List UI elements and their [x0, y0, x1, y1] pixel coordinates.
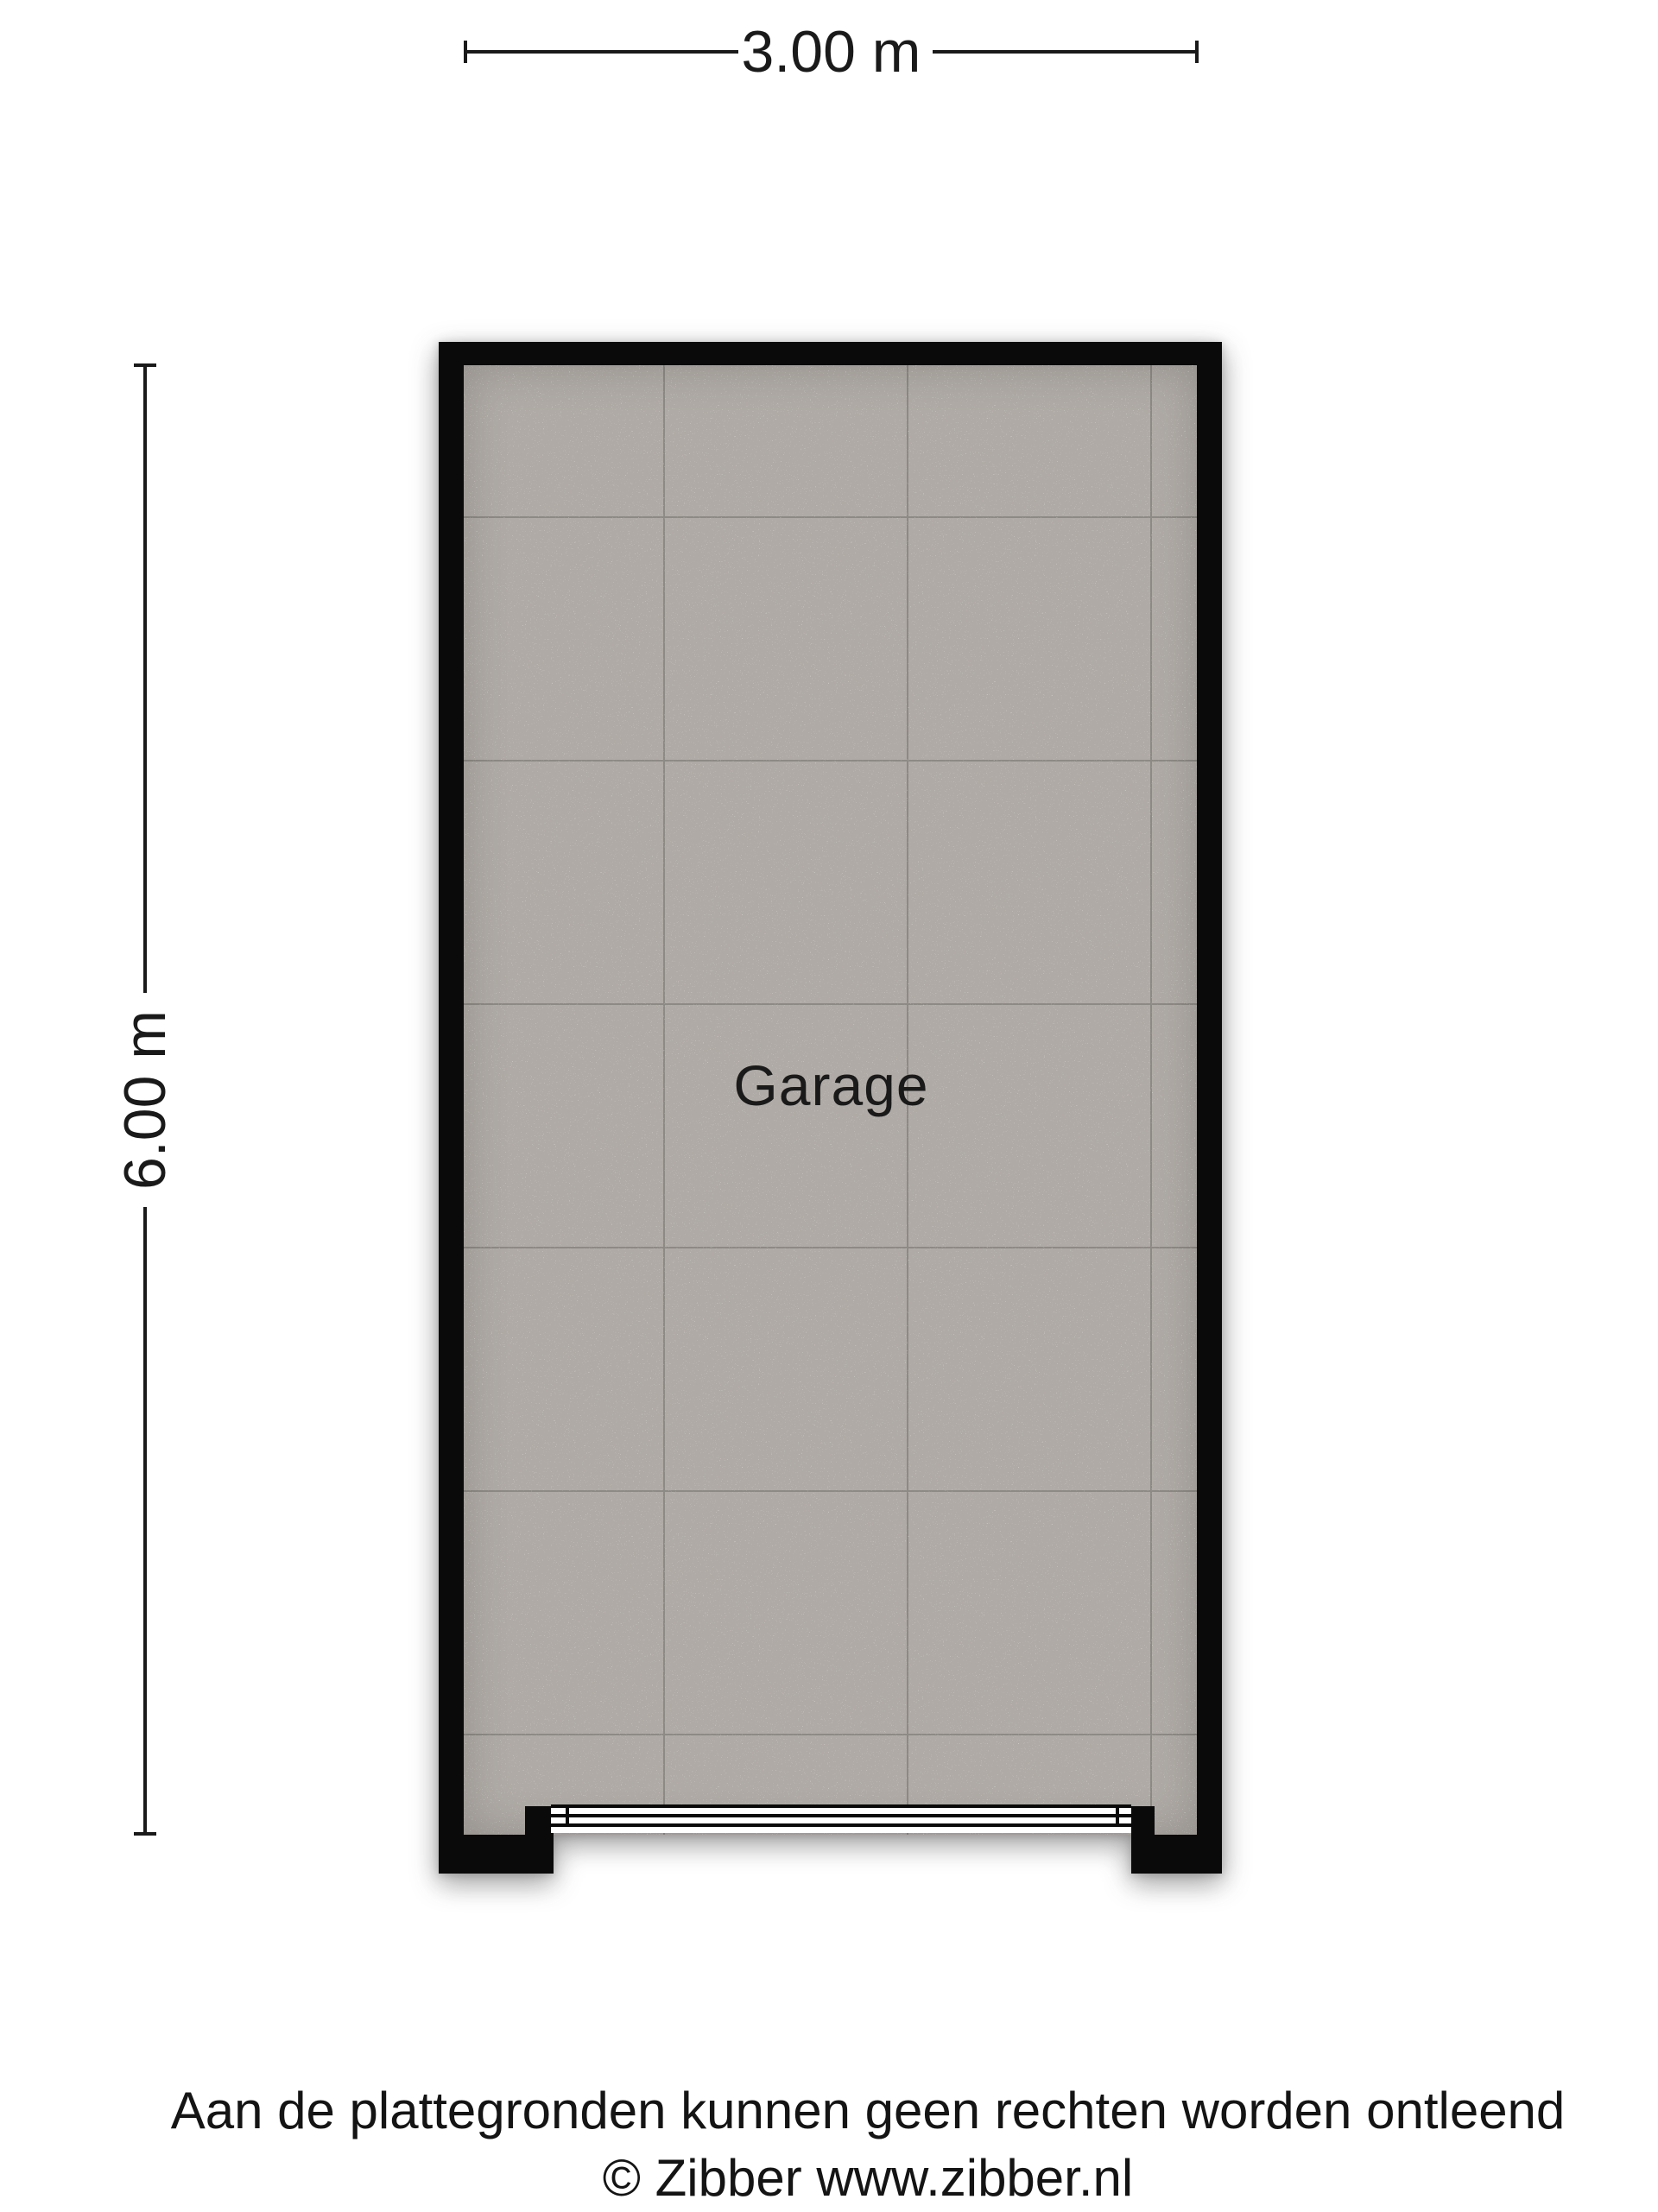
room-label: Garage: [464, 1055, 1199, 1115]
dimension-tick-top: [134, 363, 156, 367]
disclaimer-text: Aan de plattegronden kunnen geen rechten…: [78, 2077, 1658, 2145]
garage-door: [551, 1804, 1131, 1833]
door-jamb-right: [1131, 1806, 1155, 1835]
width-dimension-label: 3.00 m: [742, 18, 921, 85]
dimension-tick-bottom: [134, 1832, 156, 1836]
dimension-line-width: 3.00 m: [464, 50, 1199, 54]
wall-top: [439, 342, 1222, 365]
garage-door-panel-line: [551, 1823, 1131, 1827]
dimension-segment: [464, 50, 738, 54]
garage-door-end-cap: [566, 1808, 569, 1827]
footer: Aan de plattegronden kunnen geen rechten…: [78, 2077, 1658, 2212]
wall-stub-bottom-left: [439, 1835, 554, 1874]
garage-door-panel-line: [551, 1814, 1131, 1817]
depth-dimension-label: 6.00 m: [111, 1010, 179, 1190]
door-jamb-left: [525, 1806, 554, 1835]
wall-stub-bottom-right: [1131, 1835, 1222, 1874]
dimension-segment: [933, 50, 1199, 54]
floorplan-page: { "floorplan": { "room": { "label": "Gar…: [0, 0, 1658, 2210]
copyright-text: © Zibber www.zibber.nl: [78, 2145, 1658, 2212]
dimension-line-depth: 6.00 m: [143, 363, 147, 1836]
dimension-segment: [143, 363, 147, 993]
wall-right: [1197, 342, 1222, 1835]
wall-left: [439, 342, 464, 1835]
dimension-segment: [143, 1207, 147, 1836]
dimension-tick-left: [464, 41, 467, 63]
garage-door-end-cap: [1116, 1808, 1119, 1827]
dimension-tick-right: [1195, 41, 1199, 63]
